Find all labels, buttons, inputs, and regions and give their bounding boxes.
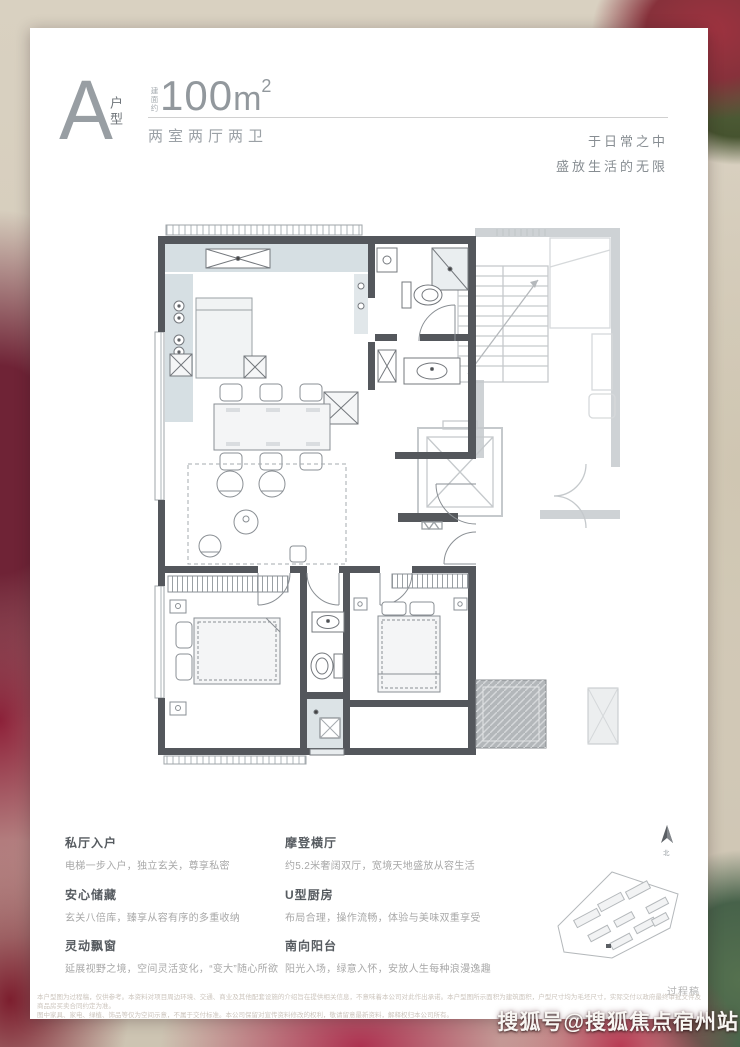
area-unit: m: [233, 80, 261, 118]
feature-south-balcony: 南向阳台 阳光入场，绿意入怀，安放人生每种浪漫逸趣: [285, 937, 501, 975]
feature-title: 摩登横厅: [285, 834, 501, 851]
north-label: 北: [663, 847, 670, 857]
feature-u-kitchen: U型厨房 布局合理，操作流畅，体验与美味双重享受: [285, 886, 501, 924]
bay-window-bottom: [164, 756, 306, 764]
slogan-line-2: 盛放生活的无限: [556, 156, 668, 175]
living-area: [188, 464, 346, 564]
room-layout-label: 两室两厅两卫: [148, 125, 268, 146]
equipment-platform: [588, 688, 618, 744]
sohu-watermark: 搜狐号@搜狐焦点宿州站: [498, 1006, 739, 1036]
feature-private-entry: 私厅入户 电梯一步入户，独立玄关，尊享私密: [65, 834, 281, 872]
feature-storage: 安心储藏 玄关八倍库，臻享从容有序的多重收纳: [65, 886, 281, 924]
wardrobe-right-bedroom: [392, 574, 468, 588]
feature-modern-hall: 摩登横厅 约5.2米奢阔双厅，宽境天地盛放从容生活: [285, 834, 501, 872]
feature-desc: 延展视野之境，空间灵活变化，“变大”随心所欲: [65, 960, 281, 975]
bay-window-top: [166, 225, 362, 235]
feature-desc: 布局合理，操作流畅，体验与美味双重享受: [285, 909, 501, 924]
feature-title: 私厅入户: [65, 834, 281, 851]
north-arrow-icon: [659, 824, 675, 846]
window-left-upper: [155, 332, 164, 500]
area-number: 100: [160, 72, 233, 119]
feature-desc: 约5.2米奢阔双厅，宽境天地盛放从容生活: [285, 857, 501, 872]
slogan-line-1: 于日常之中: [588, 131, 668, 150]
bathroom-top: [377, 248, 468, 341]
feature-title: 安心储藏: [65, 886, 281, 903]
window-left-lower: [155, 586, 164, 698]
dining-area: [214, 384, 330, 470]
elevator-shaft: [418, 421, 502, 516]
site-plan-sketch: [550, 866, 690, 968]
floorplan-card: A 户型 建面约 100m2 两室两厅两卫 于日常之中 盛放生活的无限: [30, 28, 708, 1019]
vanity-hall: [324, 350, 460, 424]
header-divider-line: [148, 117, 668, 118]
feature-title: 南向阳台: [285, 937, 501, 954]
feature-desc: 玄关八倍库，臻享从容有序的多重收纳: [65, 909, 281, 924]
area-value: 100m2: [160, 72, 271, 120]
wardrobe-left-bedroom: [168, 576, 288, 592]
bedroom-left: [170, 600, 280, 715]
area-prefix-label: 建面约: [149, 87, 160, 113]
unit-letter: A: [59, 68, 113, 152]
feature-title: 灵动飘窗: [65, 937, 281, 954]
bathroom-bottom: [311, 612, 344, 679]
bedroom-right: [354, 598, 467, 692]
area-superscript: 2: [261, 76, 271, 96]
balcony-south: [476, 680, 546, 748]
feature-desc: 阳光入场，绿意入怀，安放人生每种浪漫逸趣: [285, 960, 501, 975]
unit-type-label: 户型: [106, 96, 125, 128]
feature-title: U型厨房: [285, 886, 501, 903]
feature-bay-window: 灵动飘窗 延展视野之境，空间灵活变化，“变大”随心所欲: [65, 937, 281, 975]
floor-plan-drawing: [140, 222, 630, 767]
feature-desc: 电梯一步入户，独立玄关，尊享私密: [65, 857, 281, 872]
